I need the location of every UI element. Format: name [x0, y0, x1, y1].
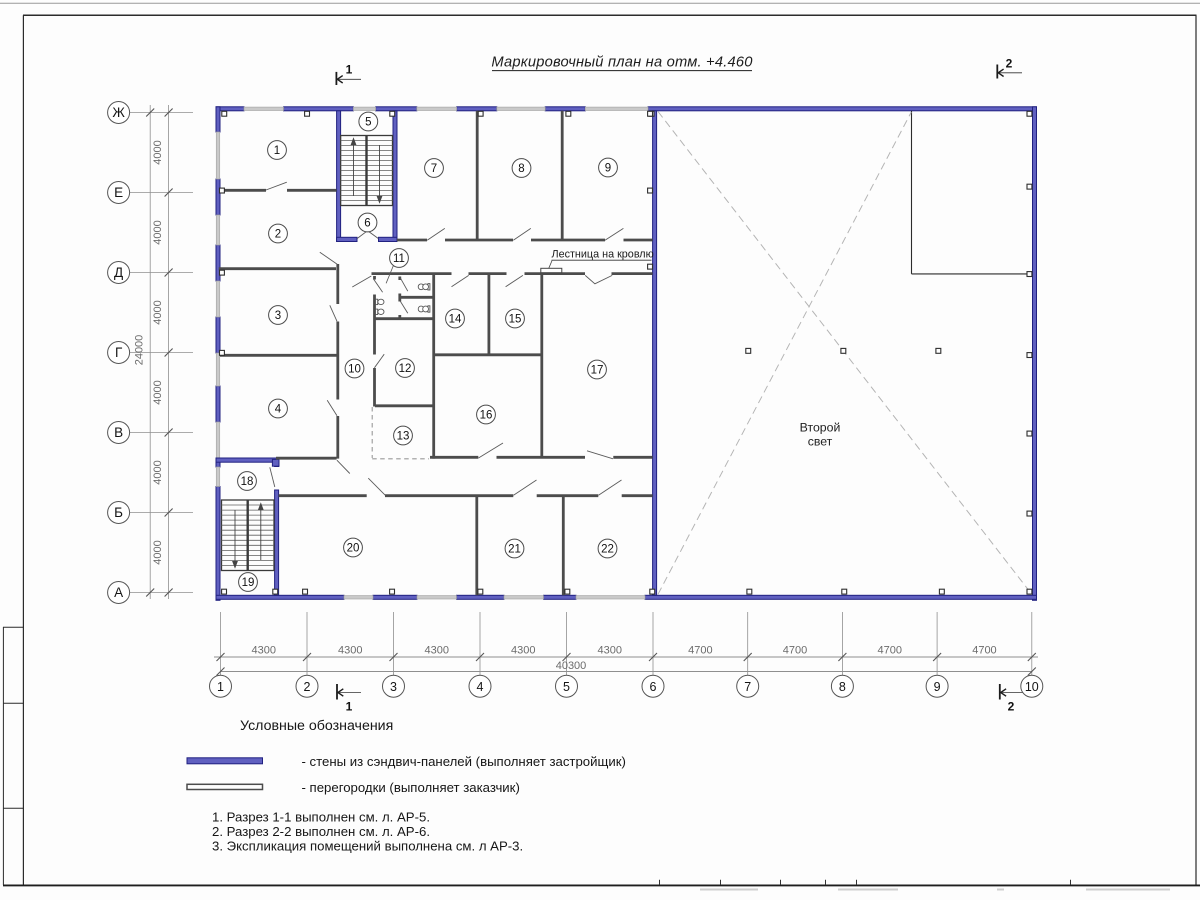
svg-text:4: 4	[477, 680, 484, 694]
svg-text:4: 4	[275, 404, 282, 416]
svg-text:- перегородки (выполняет заказ: - перегородки (выполняет заказчик)	[302, 780, 520, 795]
svg-text:1: 1	[217, 680, 224, 694]
svg-text:Второй: Второй	[800, 421, 841, 435]
svg-text:13: 13	[397, 431, 410, 443]
svg-text:2: 2	[1006, 57, 1013, 71]
svg-text:4300: 4300	[598, 645, 622, 657]
svg-text:4700: 4700	[972, 645, 996, 657]
svg-text:22: 22	[601, 544, 614, 556]
svg-text:17: 17	[591, 365, 604, 377]
svg-text:6: 6	[650, 680, 657, 694]
svg-text:24000: 24000	[134, 335, 146, 366]
svg-text:1. Разрез 1-1 выполнен см. л.: 1. Разрез 1-1 выполнен см. л. АР-5.	[212, 809, 430, 824]
svg-text:19: 19	[242, 577, 255, 589]
svg-text:свет: свет	[808, 435, 833, 449]
svg-text:В: В	[114, 425, 123, 440]
svg-text:9: 9	[934, 680, 941, 694]
svg-text:8: 8	[518, 163, 524, 175]
svg-text:5: 5	[365, 117, 371, 129]
svg-text:А: А	[114, 585, 123, 600]
svg-text:Условные обозначения: Условные обозначения	[240, 718, 393, 734]
svg-text:10: 10	[1025, 680, 1039, 694]
svg-text:6: 6	[364, 218, 370, 230]
svg-text:Лестница на кровлю: Лестница на кровлю	[552, 249, 654, 261]
svg-text:Д: Д	[114, 265, 123, 280]
svg-text:4000: 4000	[152, 140, 164, 164]
svg-text:8: 8	[839, 680, 846, 694]
svg-text:4000: 4000	[152, 540, 164, 564]
svg-text:40300: 40300	[556, 660, 587, 672]
svg-text:4000: 4000	[152, 380, 164, 404]
svg-text:1: 1	[346, 63, 353, 77]
svg-text:14: 14	[449, 314, 462, 326]
svg-text:1: 1	[346, 700, 353, 714]
svg-text:18: 18	[241, 476, 254, 488]
svg-text:3: 3	[275, 310, 281, 322]
svg-text:2. Разрез 2-2 выполнен см. л.: 2. Разрез 2-2 выполнен см. л. АР-6.	[212, 824, 430, 839]
svg-text:4000: 4000	[152, 220, 164, 244]
svg-text:4300: 4300	[338, 645, 362, 657]
svg-text:4700: 4700	[688, 645, 712, 657]
svg-text:4700: 4700	[878, 645, 902, 657]
svg-text:Б: Б	[114, 505, 123, 520]
svg-text:21: 21	[508, 544, 521, 556]
svg-text:2: 2	[1008, 700, 1015, 714]
svg-text:7: 7	[744, 680, 751, 694]
svg-text:4000: 4000	[152, 300, 164, 324]
svg-text:12: 12	[399, 363, 412, 375]
svg-text:4000: 4000	[152, 460, 164, 484]
svg-text:15: 15	[509, 314, 522, 326]
svg-text:11: 11	[393, 253, 405, 265]
svg-text:20: 20	[347, 543, 360, 555]
svg-text:1: 1	[274, 145, 280, 157]
svg-text:4300: 4300	[252, 645, 276, 657]
svg-text:2: 2	[275, 229, 281, 241]
svg-text:Г: Г	[115, 345, 123, 360]
svg-text:4300: 4300	[511, 645, 535, 657]
svg-text:- стены из сэндвич-панелей (вы: - стены из сэндвич-панелей (выполняет за…	[302, 754, 626, 769]
svg-text:Маркировочный план на отм. +4.: Маркировочный план на отм. +4.460	[491, 55, 753, 71]
svg-text:9: 9	[605, 163, 611, 175]
svg-text:3. Экспликация помещений выпол: 3. Экспликация помещений выполнена см. л…	[212, 838, 523, 853]
svg-text:2: 2	[304, 680, 311, 694]
svg-text:16: 16	[480, 410, 493, 422]
svg-text:5: 5	[563, 680, 570, 694]
svg-text:Ж: Ж	[112, 105, 125, 120]
svg-text:4300: 4300	[425, 645, 449, 657]
svg-text:3: 3	[390, 680, 397, 694]
svg-text:7: 7	[431, 163, 437, 175]
svg-text:10: 10	[348, 364, 361, 376]
svg-text:Е: Е	[114, 185, 123, 200]
svg-text:4700: 4700	[783, 645, 807, 657]
